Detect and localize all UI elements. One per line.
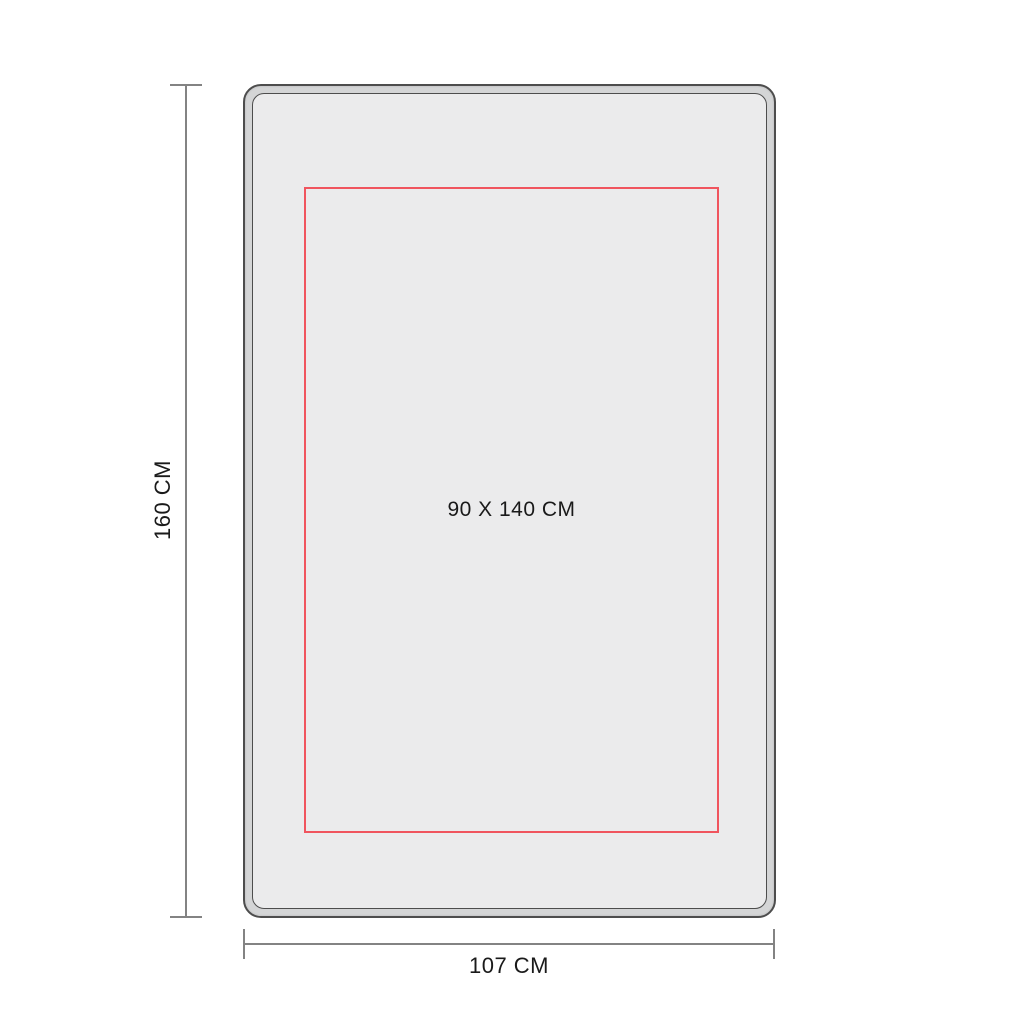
height-dimension-label: 160 CM bbox=[150, 460, 176, 540]
width-dimension-label: 107 CM bbox=[469, 953, 549, 979]
dimension-diagram: 160 CM 90 X 140 CM 107 CM bbox=[0, 0, 1024, 1024]
print-area-outline: 90 X 140 CM bbox=[304, 187, 719, 833]
width-dimension-tick-left bbox=[243, 929, 245, 959]
print-area-size-label: 90 X 140 CM bbox=[447, 498, 575, 522]
width-dimension-line bbox=[243, 943, 775, 945]
height-dimension-cap-top bbox=[170, 84, 202, 86]
width-dimension-tick-right bbox=[773, 929, 775, 959]
height-dimension-cap-bottom bbox=[170, 916, 202, 918]
height-dimension-line bbox=[185, 84, 187, 918]
